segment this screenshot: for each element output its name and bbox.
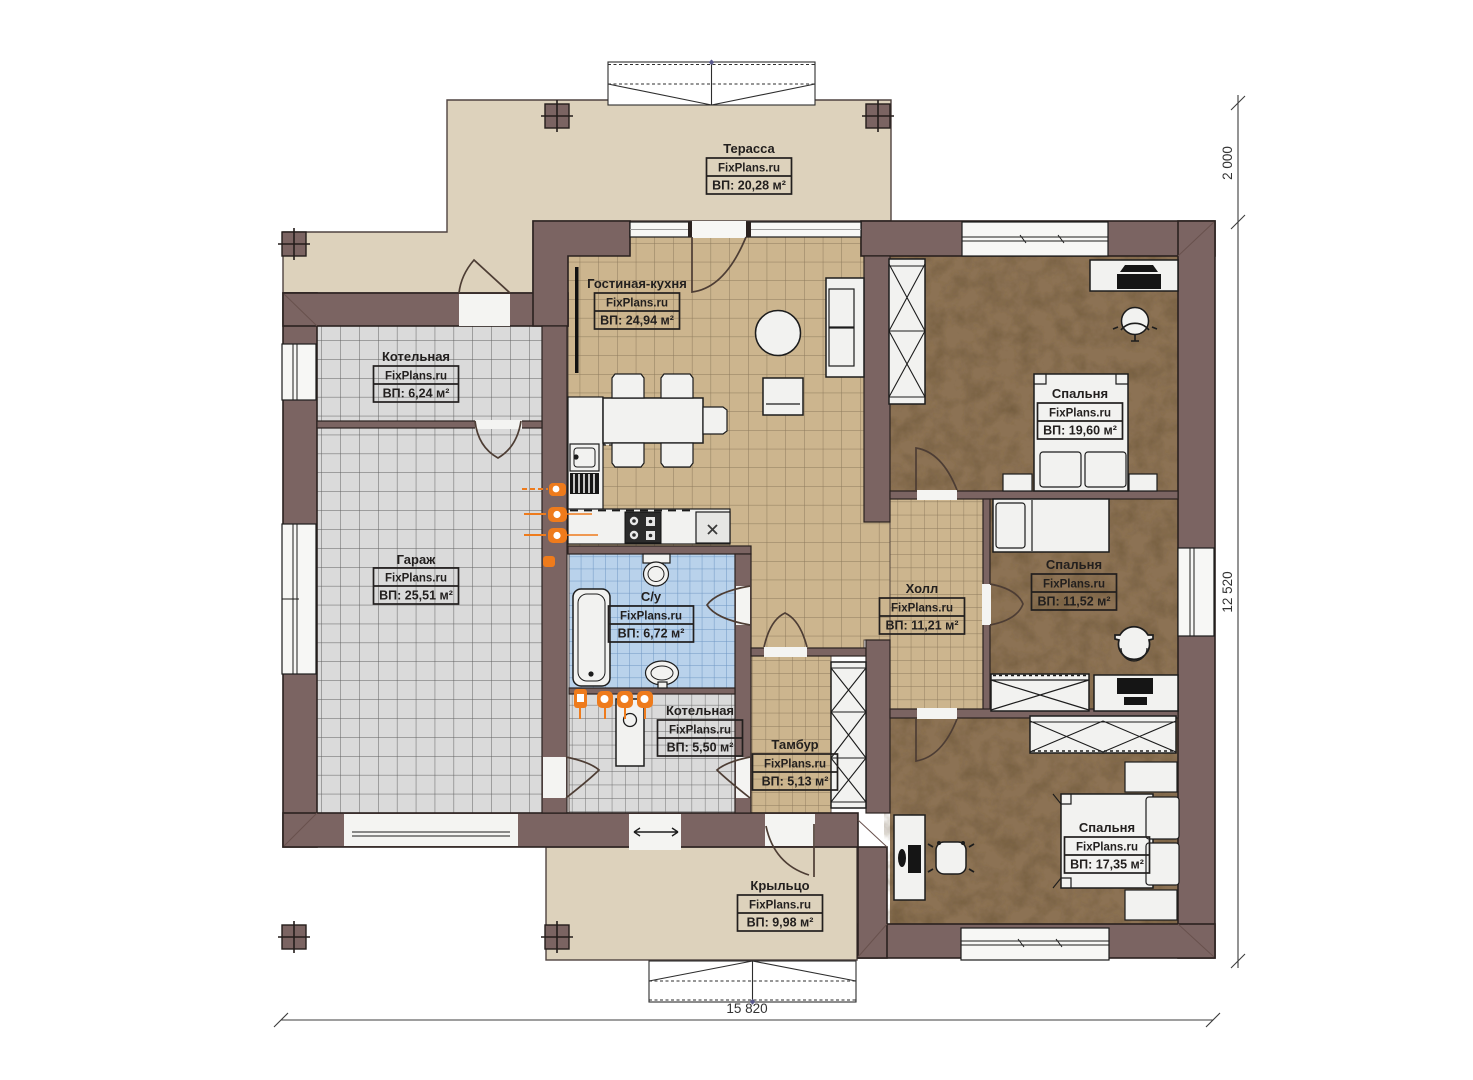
svg-text:Гостиная-кухня: Гостиная-кухня	[587, 276, 687, 291]
svg-text:Крыльцо: Крыльцо	[750, 878, 809, 893]
svg-text:FixPlans.ru: FixPlans.ru	[669, 725, 731, 737]
svg-text:С/у: С/у	[641, 589, 662, 604]
svg-text:FixPlans.ru: FixPlans.ru	[1049, 408, 1111, 420]
svg-text:Спальня: Спальня	[1079, 820, 1135, 835]
svg-text:ВП: 11,21 м²: ВП: 11,21 м²	[885, 619, 958, 633]
svg-text:ВП: 9,98 м²: ВП: 9,98 м²	[747, 916, 814, 930]
svg-text:Гараж: Гараж	[397, 552, 437, 567]
svg-text:FixPlans.ru: FixPlans.ru	[385, 371, 447, 383]
svg-text:FixPlans.ru: FixPlans.ru	[620, 611, 682, 623]
svg-text:ВП: 6,24 м²: ВП: 6,24 м²	[383, 387, 450, 401]
svg-text:FixPlans.ru: FixPlans.ru	[718, 163, 780, 175]
svg-text:Спальня: Спальня	[1052, 386, 1108, 401]
svg-text:ВП: 5,50 м²: ВП: 5,50 м²	[667, 741, 734, 755]
svg-text:FixPlans.ru: FixPlans.ru	[385, 573, 447, 585]
svg-text:Котельная: Котельная	[666, 703, 734, 718]
svg-text:ВП: 6,72 м²: ВП: 6,72 м²	[618, 627, 685, 641]
svg-text:FixPlans.ru: FixPlans.ru	[749, 900, 811, 912]
svg-text:FixPlans.ru: FixPlans.ru	[891, 603, 953, 615]
svg-text:ВП: 19,60 м²: ВП: 19,60 м²	[1043, 424, 1117, 438]
svg-text:Котельная: Котельная	[382, 349, 450, 364]
svg-text:15 820: 15 820	[726, 1001, 767, 1016]
svg-text:FixPlans.ru: FixPlans.ru	[606, 298, 668, 310]
svg-text:FixPlans.ru: FixPlans.ru	[764, 759, 826, 771]
svg-text:FixPlans.ru: FixPlans.ru	[1043, 579, 1105, 591]
svg-text:2 000: 2 000	[1220, 146, 1235, 180]
svg-text:FixPlans.ru: FixPlans.ru	[1076, 842, 1138, 854]
svg-text:Тамбур: Тамбур	[771, 737, 818, 752]
svg-text:ВП: 25,51 м²: ВП: 25,51 м²	[379, 589, 453, 603]
svg-text:Терасса: Терасса	[723, 141, 775, 156]
svg-text:ВП: 20,28 м²: ВП: 20,28 м²	[712, 179, 786, 193]
svg-text:Холл: Холл	[906, 581, 939, 596]
svg-text:ВП: 24,94 м²: ВП: 24,94 м²	[600, 314, 674, 328]
svg-text:12 520: 12 520	[1220, 571, 1235, 612]
svg-text:ВП: 5,13 м²: ВП: 5,13 м²	[762, 775, 829, 789]
svg-text:ВП: 11,52 м²: ВП: 11,52 м²	[1037, 595, 1110, 609]
svg-text:Спальня: Спальня	[1046, 557, 1102, 572]
svg-text:ВП: 17,35 м²: ВП: 17,35 м²	[1070, 858, 1144, 872]
